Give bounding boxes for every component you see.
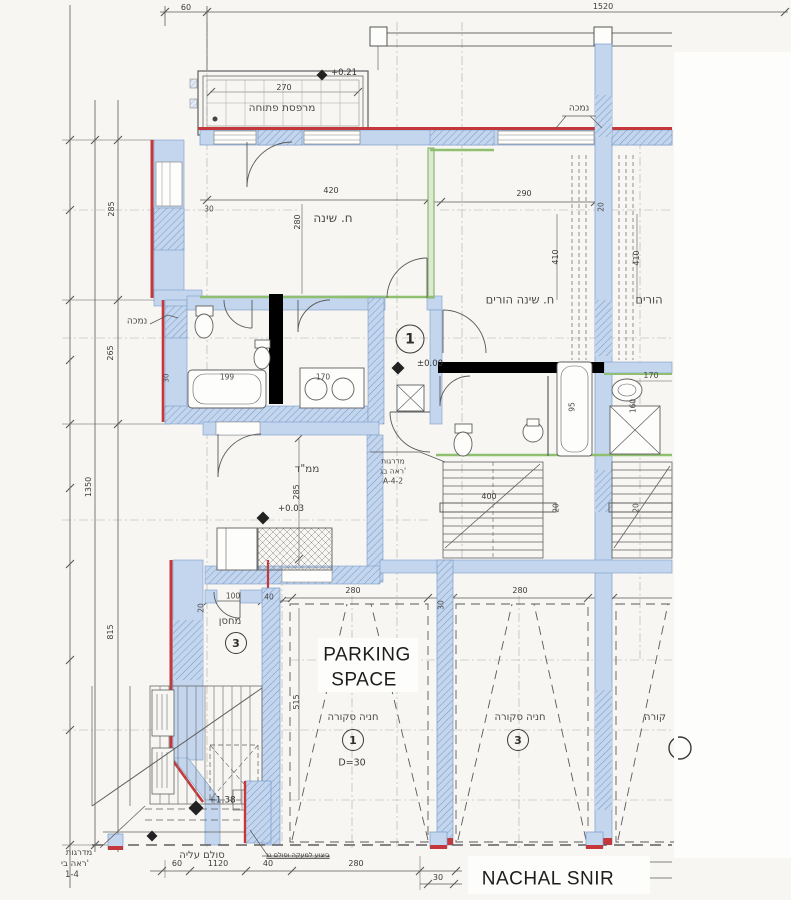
elevation-entry: ±0.00 <box>417 360 443 369</box>
dim-balcony-270: 270 <box>276 84 291 92</box>
dim-left-wall-30: 30 <box>164 374 171 383</box>
dim-bedroom-420: 420 <box>323 187 338 195</box>
dim-left-815: 815 <box>107 624 115 639</box>
dim-bath-160: 160 <box>629 399 637 413</box>
dim-master-wall-20: 20 <box>597 202 605 212</box>
dim-parking-280-b: 280 <box>512 587 527 595</box>
elevation-balcony: +0.21 <box>331 69 357 78</box>
parking-1-label: חניה סקורה <box>328 713 379 723</box>
parking-space-text-line1: PARKING <box>323 646 411 665</box>
dim-left-285: 285 <box>108 201 116 216</box>
dim-stair-400: 400 <box>481 493 496 501</box>
parking-diameter-label: D=30 <box>338 758 365 768</box>
note-entry-stairs-1: מדרגות <box>381 457 405 465</box>
room-label-storage: מחסן <box>219 617 242 627</box>
dim-parking-515: 515 <box>293 694 301 709</box>
dim-storage-100: 100 <box>226 592 240 600</box>
note-entry-stairs-2: ראה בג' <box>380 467 406 475</box>
dim-bath-170: 170 <box>643 372 658 380</box>
note-railing: ביצוע למעקה וסולם גג <box>266 852 329 859</box>
dim-bottom-280: 280 <box>348 860 363 868</box>
dim-parking-280-a: 280 <box>345 587 360 595</box>
parking-2-label: חניה סקורה <box>495 713 546 723</box>
dim-bedroom-280: 280 <box>294 214 302 229</box>
parking-space-text-line2: SPACE <box>331 671 397 690</box>
note-lowered-left: נמכה <box>127 318 147 327</box>
note-left-stairs-2: ראה בי' <box>61 860 89 869</box>
room-label-balcony: מרפסת פתוחה <box>249 103 316 114</box>
dim-bedroom-wall-30: 30 <box>204 205 214 213</box>
dim-closet-410-a: 410 <box>552 249 560 264</box>
room-label-bedroom: ח. שינה <box>313 212 352 224</box>
unit-marker-entry: 1 <box>396 325 425 354</box>
dim-stair-wall-20-b: 20 <box>632 503 640 513</box>
note-entry-stairs-3: A-4-2 <box>383 477 403 485</box>
note-left-stairs-1: מדרגות <box>66 849 93 858</box>
dim-top-60: 60 <box>181 4 191 12</box>
scan-margin-right <box>674 52 791 858</box>
note-left-stairs-3: 1-4 <box>65 871 79 880</box>
dim-top-1520: 1520 <box>593 3 613 11</box>
dim-master-290: 290 <box>516 190 531 198</box>
unit-marker-storage: 3 <box>225 632 247 654</box>
dim-left-1350: 1350 <box>85 477 93 497</box>
scan-margin-edge <box>674 52 678 858</box>
dim-left-265: 265 <box>107 345 115 360</box>
parking-3-label-partial: קורה <box>644 713 666 723</box>
dim-bottom-30: 30 <box>433 874 443 882</box>
elevation-rear-yard: +1.38 <box>208 797 236 806</box>
dim-stair-wall-20-a: 20 <box>552 503 560 513</box>
dim-closet-410-b: 410 <box>633 250 641 265</box>
street-name: NACHAL SNIR <box>482 870 615 889</box>
room-label-master-partial: הורים <box>635 294 662 306</box>
dim-counter-170: 170 <box>316 373 330 381</box>
dim-storage-40: 40 <box>264 593 274 601</box>
floor-plan-drawing <box>0 0 791 900</box>
dim-tub-199: 199 <box>220 373 234 381</box>
parking-1-number: 1 <box>342 729 364 751</box>
dim-tub-95: 95 <box>568 402 576 412</box>
note-lowered-right: נמכה <box>569 105 589 114</box>
dim-parking-30: 30 <box>437 600 445 610</box>
dim-mamad-285: 285 <box>293 484 301 499</box>
parking-2-number: 3 <box>507 729 529 751</box>
dim-bottom-60: 60 <box>172 860 182 868</box>
room-label-master-bedroom: ח. שינה הורים <box>486 294 555 306</box>
floor-plan: 60 1520 285 265 1350 815 270 +0.21 מרפסת… <box>0 0 791 900</box>
room-label-mamad: ממ"ד <box>295 464 320 475</box>
dim-storage-20: 20 <box>197 603 205 613</box>
dim-bottom-1120: 1120 <box>208 860 228 868</box>
dim-bottom-40: 40 <box>263 860 273 868</box>
elevation-mamad: +0.03 <box>278 505 304 514</box>
